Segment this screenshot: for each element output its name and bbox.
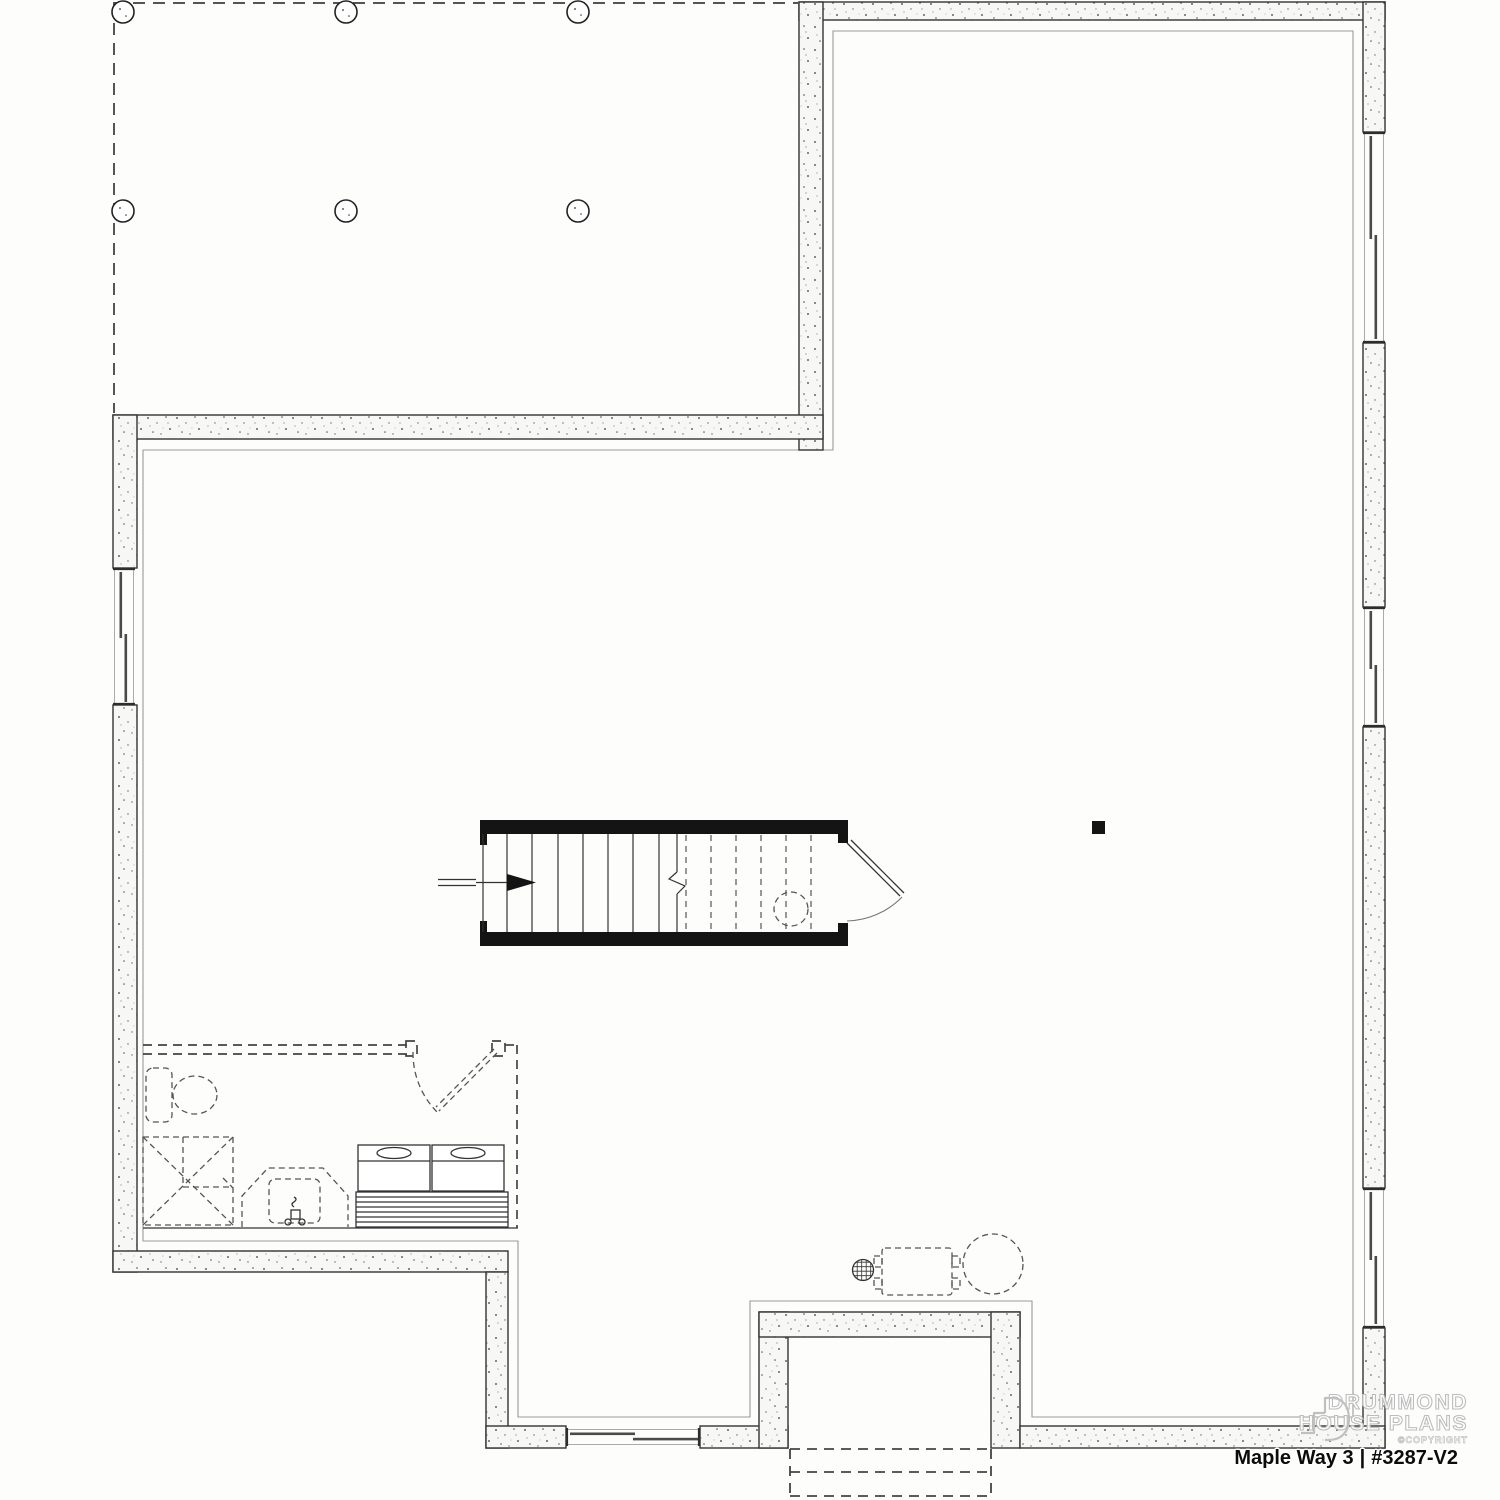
structural-post <box>1092 821 1105 834</box>
door-jamb-top <box>838 834 848 843</box>
shower <box>143 1137 233 1225</box>
platform <box>356 1192 508 1227</box>
wall-left-b <box>113 705 137 1272</box>
bathroom-door <box>413 1049 497 1112</box>
staircase <box>438 820 1105 946</box>
plan-name: Maple Way 3 <box>1234 1447 1353 1469</box>
pier <box>335 1 357 23</box>
pier <box>335 200 357 222</box>
break-line-icon <box>669 872 685 894</box>
wall-right-c <box>1363 727 1385 1188</box>
floor-plan-canvas: DRUMMOND HOUSE PLANS ©COPYRIGHT Maple Wa… <box>0 0 1500 1500</box>
unexcavated-area <box>112 1 799 413</box>
interior-finish-lines <box>143 31 1353 1417</box>
plan-number: #3287-V2 <box>1371 1447 1458 1469</box>
window-right-2 <box>1363 607 1385 727</box>
toilet <box>146 1068 217 1122</box>
wall-bottom-left <box>113 1251 508 1272</box>
faucet-icon <box>285 1197 305 1225</box>
window-bottom <box>566 1428 700 1446</box>
foundation-walls <box>113 2 1385 1448</box>
wall-upper-left <box>113 415 823 439</box>
pier <box>567 200 589 222</box>
door-jamb-bottom <box>838 923 848 932</box>
furnace <box>874 1248 960 1295</box>
pier <box>112 200 134 222</box>
garage-recess-head <box>759 1312 1020 1337</box>
wall-top <box>799 2 1385 20</box>
wall-right-a <box>1363 2 1385 132</box>
floor-drain-icon <box>853 1260 874 1281</box>
laundry-area <box>356 1145 508 1227</box>
window-right-1 <box>1363 132 1385 343</box>
wall-step-vertical <box>486 1272 508 1448</box>
drummond-logo-icon <box>1299 1392 1351 1446</box>
utility-fixtures <box>853 1234 1024 1295</box>
garage-recess-right-jamb <box>991 1312 1020 1448</box>
sump-circle <box>774 892 808 926</box>
vanity-sink <box>242 1168 348 1227</box>
wall-left-a <box>113 415 137 568</box>
floor-plan-drawing <box>0 0 1500 1500</box>
stair-direction-arrow <box>438 874 536 891</box>
windows <box>113 132 1385 1446</box>
window-left <box>113 568 135 705</box>
watermark: DRUMMOND HOUSE PLANS ©COPYRIGHT <box>1299 1392 1468 1445</box>
stair-door <box>847 840 904 921</box>
pier <box>567 1 589 23</box>
garage-door-opening <box>790 1449 991 1496</box>
watermark-copyright: ©COPYRIGHT <box>1398 1435 1468 1445</box>
plan-title: Maple Way 3|#3287-V2 <box>1234 1447 1458 1470</box>
wall-divider <box>799 2 823 450</box>
washer <box>358 1145 430 1191</box>
wall-bottom-a <box>486 1426 566 1448</box>
pier <box>112 1 134 23</box>
water-heater <box>963 1234 1023 1294</box>
wall-right-b <box>1363 343 1385 607</box>
dryer <box>432 1145 504 1191</box>
window-right-3 <box>1363 1188 1385 1328</box>
plan-title-divider: | <box>1354 1447 1372 1469</box>
